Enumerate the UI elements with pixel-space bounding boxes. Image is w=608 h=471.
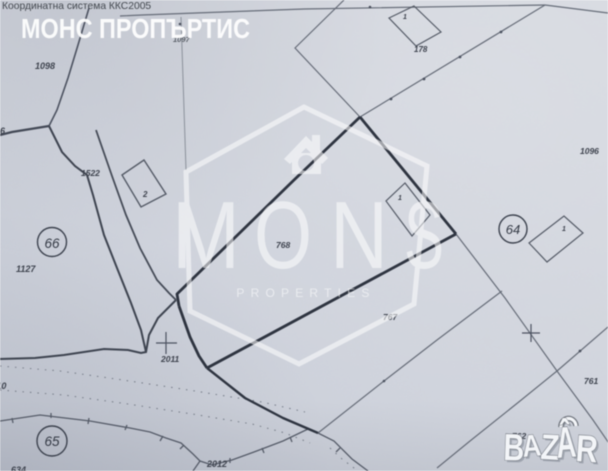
svg-text:65: 65 [44, 434, 60, 449]
svg-text:64: 64 [506, 222, 520, 237]
svg-text:O: O [254, 182, 312, 289]
svg-text:МОНС ПРОПЪРТИС: МОНС ПРОПЪРТИС [21, 13, 250, 44]
svg-text:634: 634 [11, 465, 26, 471]
svg-text:1127: 1127 [16, 264, 36, 274]
svg-text:110: 110 [0, 381, 6, 391]
svg-text:1098: 1098 [35, 61, 55, 71]
svg-text:N: N [330, 182, 388, 289]
svg-text:1096: 1096 [580, 146, 599, 156]
svg-text:2012: 2012 [206, 459, 227, 469]
svg-text:1: 1 [562, 226, 566, 233]
svg-text:1: 1 [398, 195, 402, 202]
svg-text:1522: 1522 [81, 168, 100, 178]
svg-text:S: S [404, 182, 444, 289]
svg-text:66: 66 [44, 236, 60, 251]
svg-text:2: 2 [142, 190, 148, 199]
svg-text:1: 1 [403, 14, 407, 21]
svg-text:2011: 2011 [160, 354, 180, 364]
svg-text:761: 761 [584, 376, 598, 386]
svg-text:PROPERTIES: PROPERTIES [236, 286, 375, 300]
svg-text:Координатна система ККС2005: Координатна система ККС2005 [2, 1, 151, 12]
svg-text:178: 178 [414, 45, 428, 54]
svg-text:M: M [172, 182, 240, 289]
svg-text:R: R [574, 428, 599, 471]
